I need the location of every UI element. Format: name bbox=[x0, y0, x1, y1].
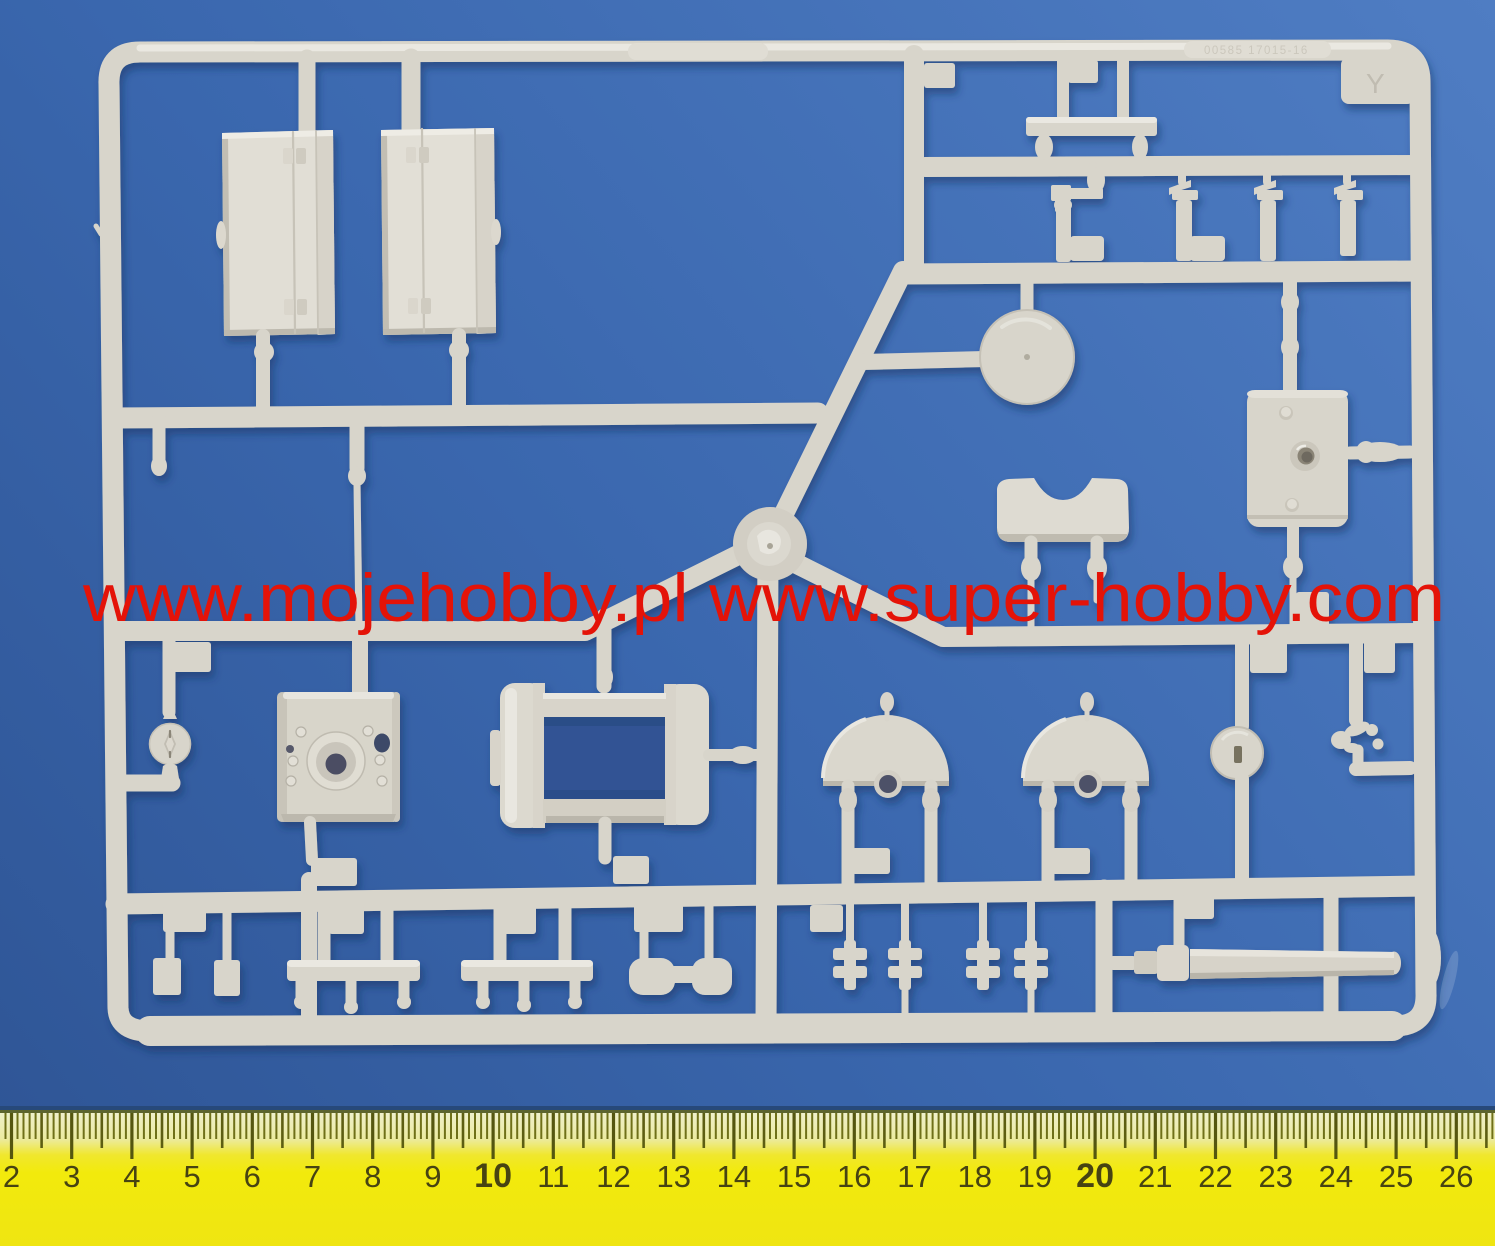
svg-text:Y: Y bbox=[1366, 68, 1385, 99]
svg-text:6: 6 bbox=[244, 1159, 261, 1194]
svg-text:18: 18 bbox=[957, 1159, 991, 1194]
svg-text:4: 4 bbox=[123, 1159, 140, 1194]
svg-text:23: 23 bbox=[1258, 1159, 1292, 1194]
svg-text:16: 16 bbox=[837, 1159, 871, 1194]
svg-text:12: 12 bbox=[596, 1159, 630, 1194]
svg-text:10: 10 bbox=[474, 1157, 512, 1195]
svg-text:2: 2 bbox=[3, 1159, 20, 1194]
svg-text:19: 19 bbox=[1018, 1159, 1052, 1194]
svg-text:3: 3 bbox=[63, 1159, 80, 1194]
svg-text:11: 11 bbox=[537, 1159, 569, 1194]
svg-text:13: 13 bbox=[656, 1159, 690, 1194]
svg-text:5: 5 bbox=[183, 1159, 200, 1194]
svg-text:8: 8 bbox=[364, 1159, 381, 1194]
svg-text:9: 9 bbox=[424, 1159, 441, 1194]
svg-text:7: 7 bbox=[304, 1159, 321, 1194]
svg-text:00585 17015-16: 00585 17015-16 bbox=[1204, 45, 1309, 57]
svg-text:www.mojehobby.pl www.super-hob: www.mojehobby.pl www.super-hobby.com bbox=[82, 560, 1445, 636]
svg-text:15: 15 bbox=[777, 1159, 811, 1194]
svg-text:26: 26 bbox=[1439, 1159, 1473, 1194]
svg-text:20: 20 bbox=[1076, 1157, 1114, 1195]
svg-text:24: 24 bbox=[1319, 1159, 1353, 1194]
svg-text:17: 17 bbox=[897, 1159, 931, 1194]
svg-text:22: 22 bbox=[1198, 1159, 1232, 1194]
svg-text:14: 14 bbox=[717, 1159, 751, 1194]
svg-text:21: 21 bbox=[1138, 1159, 1172, 1194]
svg-text:25: 25 bbox=[1379, 1159, 1413, 1194]
